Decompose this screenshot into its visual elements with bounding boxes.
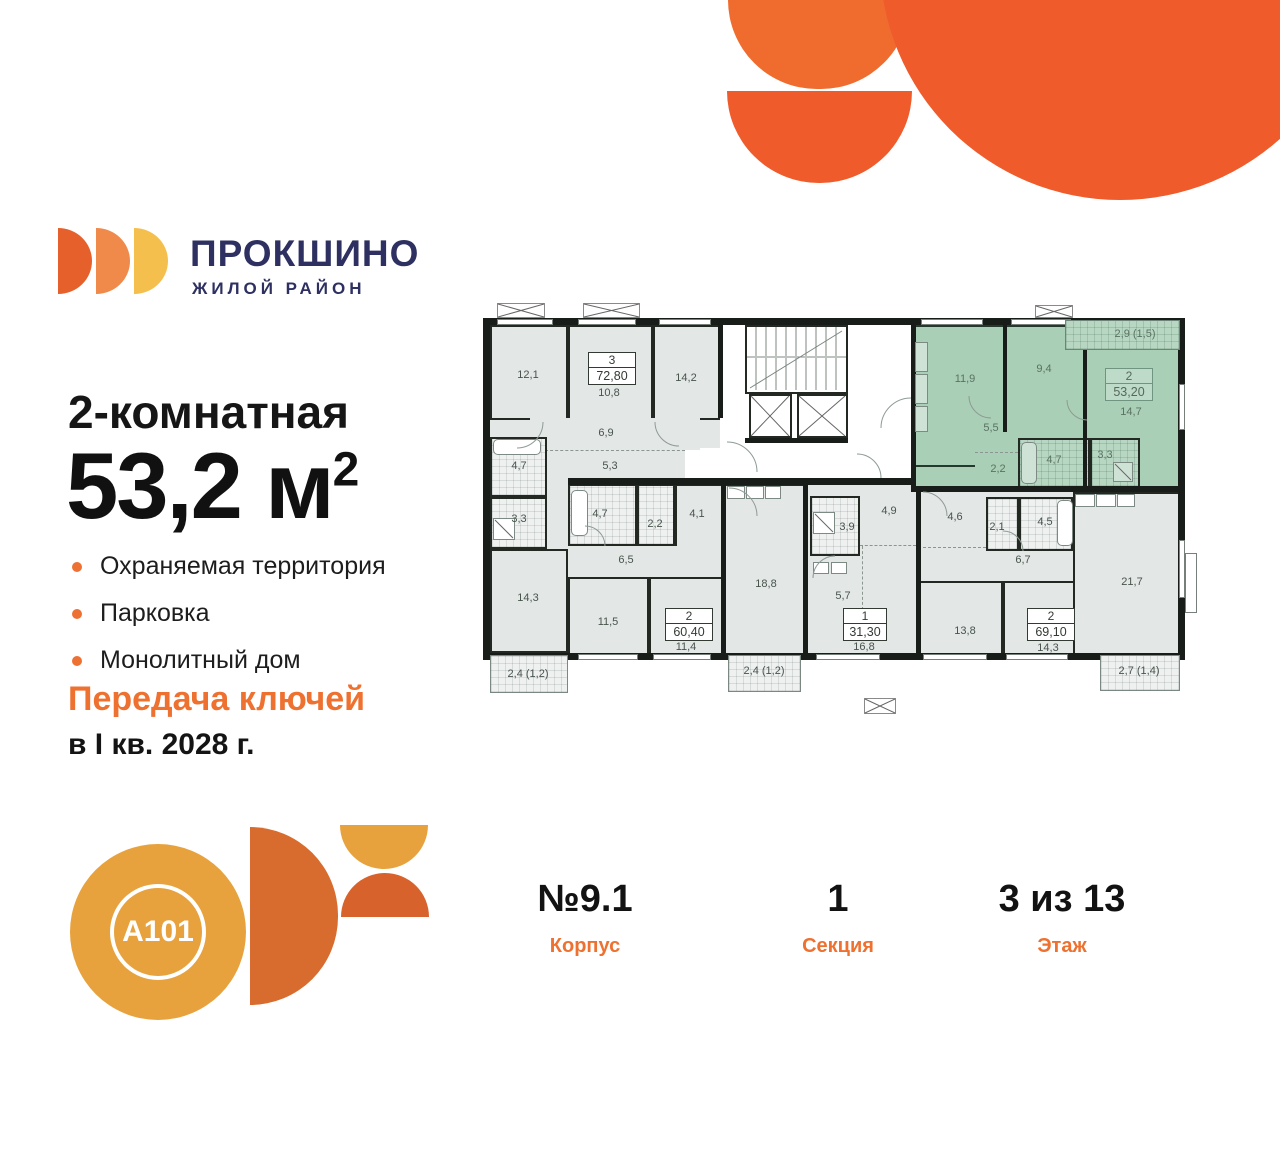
- section-label: Секция: [728, 935, 948, 958]
- room-area-label: 14,2: [675, 372, 696, 384]
- room-area-label: 3,3: [1097, 449, 1112, 461]
- unit-id: 2: [666, 609, 712, 624]
- room-area-label: 21,7: [1121, 576, 1142, 588]
- room-area-label: 2,1: [989, 521, 1004, 533]
- room-area-label: 4,7: [1046, 454, 1061, 466]
- unit-id: 2: [1028, 609, 1074, 624]
- brand-title: ПРОКШИНО: [190, 233, 419, 275]
- offer-area-unit: м: [265, 433, 333, 538]
- room-area-label: 4,6: [947, 511, 962, 523]
- room-area-label: 13,8: [954, 625, 975, 637]
- a101-d-shape-icon: [250, 827, 338, 1005]
- feature-item: Монолитный дом: [72, 646, 301, 675]
- unit-info-box: 3 72,80: [588, 352, 636, 385]
- a101-circle-icon: A101: [70, 844, 246, 1020]
- decor-big-circle: [880, 0, 1280, 200]
- feature-label: Охраняемая территория: [100, 552, 386, 581]
- brand-tagline: ЖИЛОЙ РАЙОН: [192, 279, 366, 299]
- room-area-label: 6,5: [618, 554, 633, 566]
- room-area-label: 9,4: [1036, 363, 1051, 375]
- unit-total-area: 60,40: [666, 624, 712, 640]
- unit-info-box-selected: 2 53,20: [1105, 368, 1153, 401]
- unit-info-box: 2 60,40: [665, 608, 713, 641]
- room-area-label: 14,3: [517, 592, 538, 604]
- room-area-label: 3,3: [511, 513, 526, 525]
- offer-area-value: 53,2: [66, 433, 241, 538]
- room-area-label: 2,2: [647, 518, 662, 530]
- floor-label: Этаж: [952, 935, 1172, 958]
- room-area-label: 6,7: [1015, 554, 1030, 566]
- a101-ring-label: A101: [110, 884, 206, 980]
- room-area-label: 14,7: [1120, 406, 1141, 418]
- room-area-label: 11,5: [598, 616, 619, 628]
- room-area-label: 2,2: [990, 463, 1005, 475]
- room-area-label: 3,9: [839, 521, 854, 533]
- decor-semicircle-top: [728, 0, 910, 89]
- decor-semicircle-bottom: [727, 91, 912, 183]
- footer-section: 1 Секция: [728, 878, 948, 958]
- handover-line1: Передача ключей: [68, 680, 365, 719]
- unit-total-area: 69,10: [1028, 624, 1074, 640]
- feature-label: Монолитный дом: [100, 646, 301, 675]
- feature-label: Парковка: [100, 599, 210, 628]
- room-area-label: 4,9: [881, 505, 896, 517]
- balcony-area-label: 2,9 (1,5): [1115, 328, 1156, 340]
- bullet-icon: [72, 609, 82, 619]
- unit-total-area: 53,20: [1106, 384, 1152, 400]
- building-label: Корпус: [475, 935, 695, 958]
- unit-id: 2: [1106, 369, 1152, 384]
- balcony-area-label: 2,7 (1,4): [1119, 665, 1160, 677]
- room-area-label: 5,3: [602, 460, 617, 472]
- room-area-label: 18,8: [755, 578, 776, 590]
- unit-total-area: 72,80: [589, 368, 635, 384]
- room-area-label: 5,5: [983, 422, 998, 434]
- room-area-label: 10,8: [598, 387, 619, 399]
- room-area-label: 11,9: [955, 373, 976, 385]
- balcony-area-label: 2,4 (1,2): [508, 668, 549, 680]
- feature-item: Охраняемая территория: [72, 552, 386, 581]
- balcony-area-label: 2,4 (1,2): [744, 665, 785, 677]
- room-area-label: 4,5: [1037, 516, 1052, 528]
- footer-building: №9.1 Корпус: [475, 878, 695, 958]
- room-area-label: 12,1: [517, 369, 538, 381]
- unit-info-box: 1 31,30: [843, 608, 887, 641]
- floor-plan: 3 72,80 2 60,40 1 31,30 2 69,10 2 53,20 …: [483, 300, 1197, 722]
- logo-d-shape-1-icon: [58, 228, 92, 294]
- floor-value: 3 из 13: [952, 878, 1172, 921]
- room-area-label: 16,8: [853, 641, 874, 653]
- a101-half-orange-icon: [341, 873, 429, 917]
- room-area-label: 14,3: [1037, 642, 1058, 654]
- room-area-label: 4,7: [511, 460, 526, 472]
- unit-total-area: 31,30: [844, 624, 886, 640]
- footer-floor: 3 из 13 Этаж: [952, 878, 1172, 958]
- section-value: 1: [728, 878, 948, 921]
- room-area-label: 5,7: [835, 590, 850, 602]
- room-area-label: 6,9: [598, 427, 613, 439]
- offer-area-sup: 2: [333, 444, 358, 497]
- offer-title: 2-комнатная: [68, 385, 349, 439]
- room-area-label: 11,4: [676, 641, 697, 653]
- unit-id: 1: [844, 609, 886, 624]
- logo-d-shape-3-icon: [134, 228, 168, 294]
- a101-half-yellow-icon: [340, 825, 428, 869]
- room-area-label: 4,1: [689, 508, 704, 520]
- room-area-label: 4,7: [592, 508, 607, 520]
- bullet-icon: [72, 656, 82, 666]
- unit-info-box: 2 69,10: [1027, 608, 1075, 641]
- bullet-icon: [72, 562, 82, 572]
- handover-line2: в I кв. 2028 г.: [68, 728, 254, 762]
- promo-card: { "brand": { "name": "ПРОКШИНО", "taglin…: [0, 0, 1280, 1160]
- building-value: №9.1: [475, 878, 695, 921]
- unit-id: 3: [589, 353, 635, 368]
- logo-d-shape-2-icon: [96, 228, 130, 294]
- offer-area: 53,2 м2: [66, 432, 357, 540]
- feature-item: Парковка: [72, 599, 210, 628]
